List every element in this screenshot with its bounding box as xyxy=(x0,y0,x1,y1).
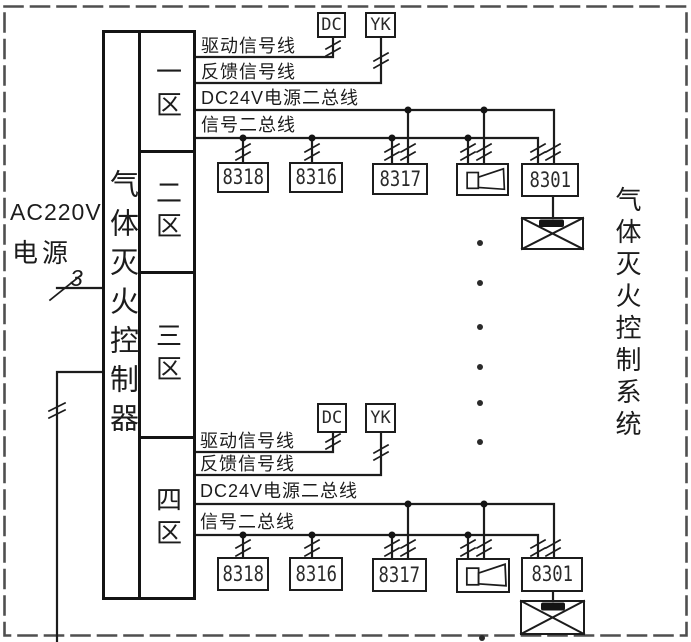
ac-power-label: AC220V xyxy=(10,201,102,224)
zone-3-label: 三区 xyxy=(155,322,181,388)
controller-title-wrap: 气体灭火控制器 xyxy=(104,162,138,448)
system-caption-wrap: 气体灭火控制系统 xyxy=(612,186,642,436)
dc24v-bus-label: DC24V电源二总线 xyxy=(201,88,359,108)
device-box-8318: 8318 xyxy=(217,557,269,591)
signal-bus-label: 信号二总线 xyxy=(201,115,296,135)
device-box-8301: 8301 xyxy=(521,163,579,197)
zone-cell-3: 三区 xyxy=(141,274,194,436)
gas-extinguishing-wiring-diagram: AC220V 电源 3 气体灭火控制器 一区 二区 三区 四区 驱动信号线 反馈… xyxy=(0,0,691,642)
dc-box: DC xyxy=(317,12,346,38)
wire-count-label: 3 xyxy=(70,267,83,290)
signal-bus-wire xyxy=(196,138,538,163)
zone-cell-1: 一区 xyxy=(141,32,194,150)
horn-speaker-icon xyxy=(459,561,507,590)
mains-power-wires xyxy=(49,276,102,642)
drive-signal-label: 驱动信号线 xyxy=(200,431,295,451)
zone-cell-4: 四区 xyxy=(141,439,194,598)
device-box-8301: 8301 xyxy=(521,557,583,592)
controller-title: 气体灭火控制器 xyxy=(107,169,136,442)
drive-signal-label: 驱动信号线 xyxy=(201,36,296,56)
ac-power-label-2: 电源 xyxy=(12,240,72,266)
dc-box: DC xyxy=(317,403,347,433)
dc24v-bus-label: DC24V电源二总线 xyxy=(200,481,358,501)
zone-4-label: 四区 xyxy=(155,486,181,552)
horn-speaker-icon xyxy=(459,166,506,193)
zone-2-label: 二区 xyxy=(155,179,181,245)
device-box-8318: 8318 xyxy=(217,162,269,193)
feedback-signal-label: 反馈信号线 xyxy=(200,454,295,474)
feeder-wire xyxy=(57,372,102,642)
zone1-gas-discharge-indicator xyxy=(522,218,583,249)
signal-bus-label: 信号二总线 xyxy=(200,512,295,532)
sounder-box xyxy=(456,163,509,196)
device-box-8317: 8317 xyxy=(372,163,428,195)
zone4-gas-discharge-indicator xyxy=(521,601,584,634)
signal-bus-wire xyxy=(196,535,538,557)
yk-box: YK xyxy=(365,12,396,38)
device-box-8317: 8317 xyxy=(372,558,427,592)
sounder-box xyxy=(456,558,510,593)
system-caption: 气体灭火控制系统 xyxy=(614,186,640,436)
zone-cell-2: 二区 xyxy=(141,153,194,271)
feedback-signal-label: 反馈信号线 xyxy=(201,62,296,82)
device-box-8316: 8316 xyxy=(289,557,343,591)
device-box-8316: 8316 xyxy=(289,162,343,193)
zone-1-label: 一区 xyxy=(155,58,181,124)
yk-box: YK xyxy=(365,403,396,433)
